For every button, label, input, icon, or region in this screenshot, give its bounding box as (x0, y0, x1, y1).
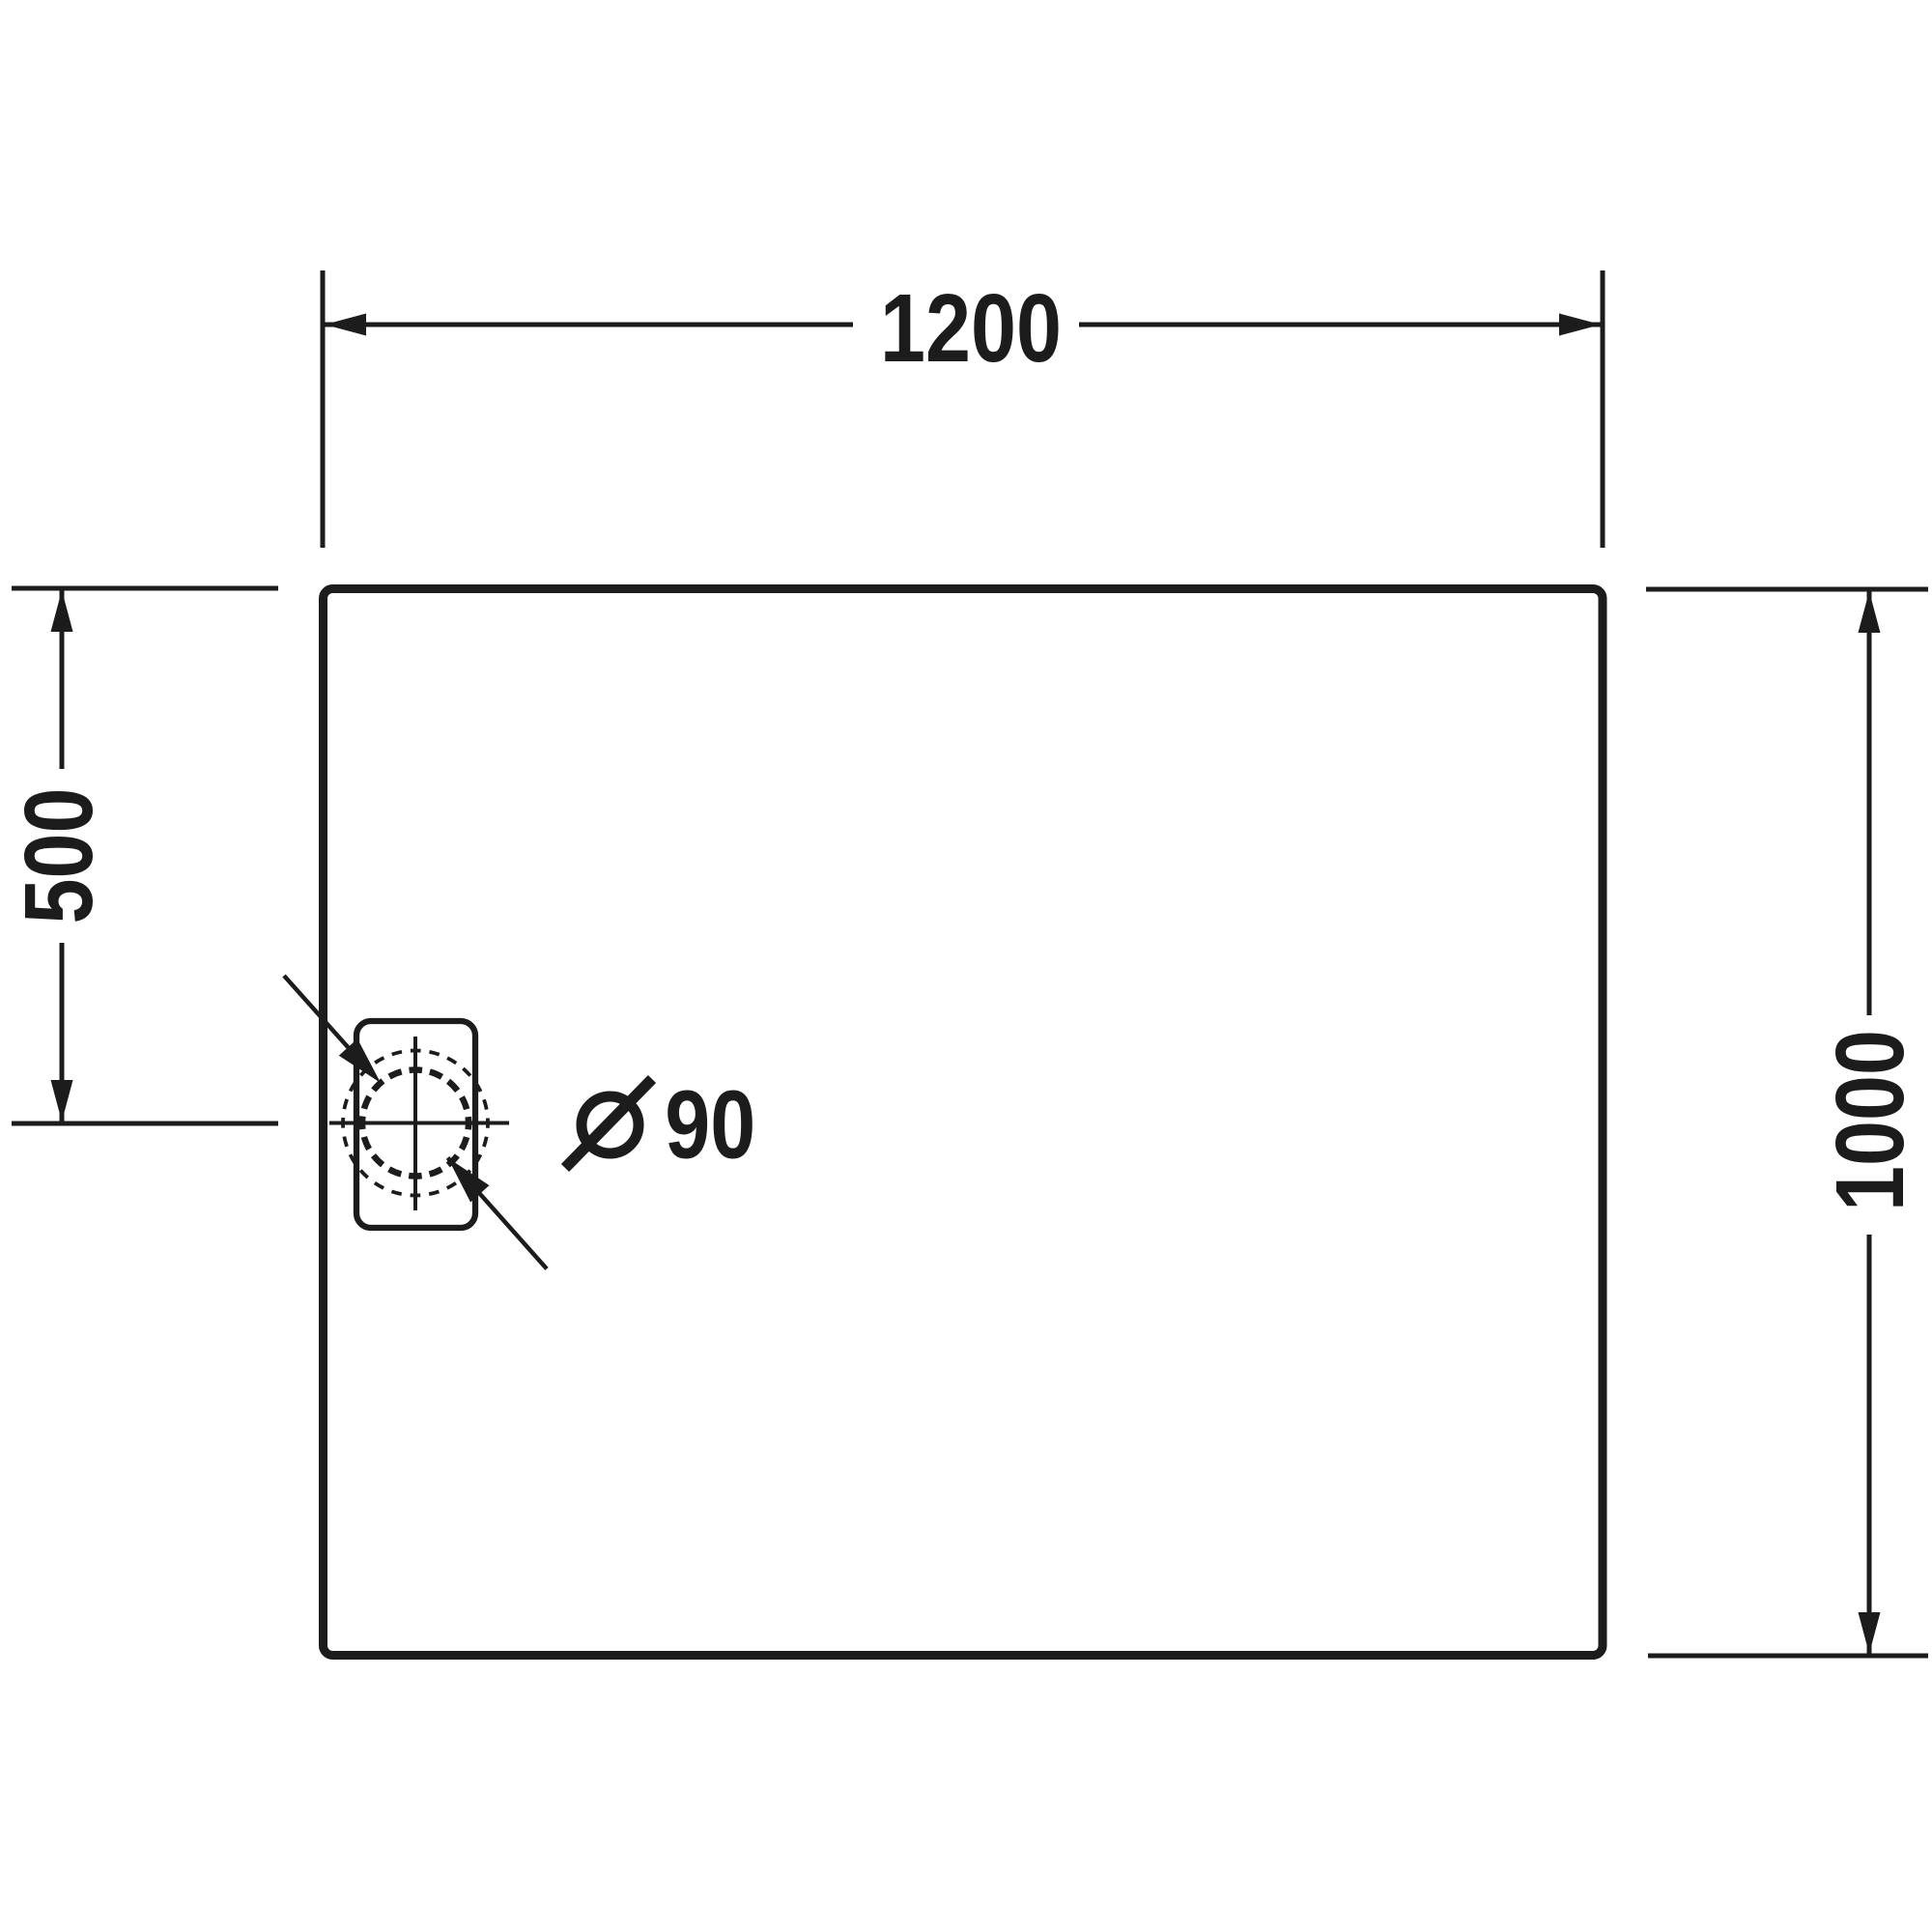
svg-text:500: 500 (4, 788, 112, 924)
svg-text:1000: 1000 (1815, 1030, 1923, 1211)
svg-text:1200: 1200 (880, 273, 1062, 382)
svg-text:90: 90 (665, 1070, 755, 1179)
